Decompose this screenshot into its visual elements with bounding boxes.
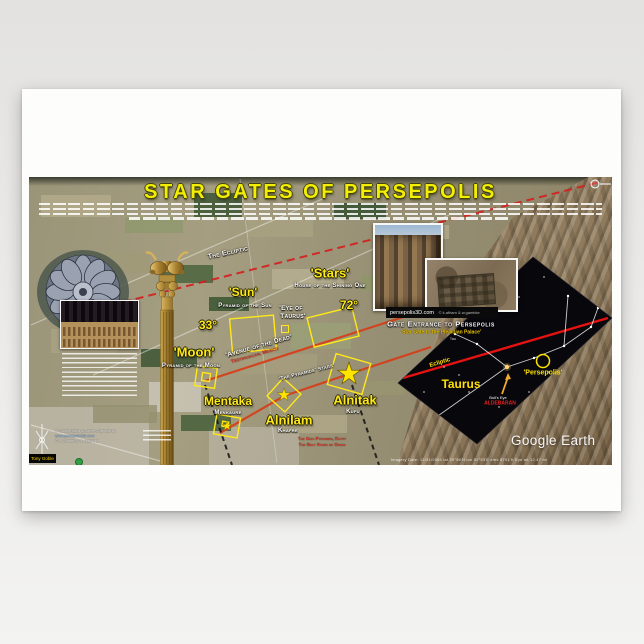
relief-columns <box>61 301 138 322</box>
alnitak-label: Alnitak <box>333 394 376 407</box>
stars-site-sublabel: House of the Shining One <box>294 283 365 289</box>
taurus-label: Taurus <box>441 378 480 390</box>
credits-fineprint <box>143 430 171 444</box>
moon-site-label: 'Moon' <box>174 346 215 359</box>
stars-site-label: 'Stars' <box>311 267 350 280</box>
credits-block: In Cooperation & Some Graphics by www.pe… <box>55 429 116 444</box>
intro-fineprint-line <box>39 213 602 215</box>
bulls-eye-label: Bull's Eye <box>489 396 506 400</box>
gate-entrance-subtitle: 'Star Gate to the Pleiadian Palace' <box>401 331 481 336</box>
aldebaran-label: ALDEBARAN <box>484 402 516 407</box>
alnilam-label: Alnilam <box>266 414 313 427</box>
gate-entrance-title: Gate Entrance to Persepolis <box>387 320 495 328</box>
intro-fineprint-line <box>129 217 509 219</box>
stars-angle-label: 72° <box>340 299 358 311</box>
intro-fineprint-line <box>39 208 602 210</box>
moon-site-sublabel: Pyramid of the Moon <box>162 363 220 369</box>
poster: STAR GATES OF PERSEPOLIS persepolis3D.co… <box>22 89 621 511</box>
render-caption-bar: persepolis3D.com © k.afham & w.gambke <box>386 307 498 318</box>
moon-angle-label: 33° <box>199 319 217 331</box>
render-caption-credit: © k.afham & w.gambke <box>439 310 480 315</box>
author-badge: Tony Goble <box>29 454 56 463</box>
kufu-sublabel: Kufu <box>346 409 360 415</box>
imagery-attribution: Imagery Date: 12/31/2004 lat 29°56'N lon… <box>329 458 609 462</box>
relief-figures-row <box>63 339 137 347</box>
credits-line-3: © K. Afham & W. Gambke <box>55 439 116 444</box>
eye-of-taurus-label-2: Taurus' <box>280 314 305 321</box>
eye-of-taurus-label-1: 'Eye of <box>279 306 302 313</box>
apadana-relief-photo <box>60 300 139 349</box>
poster-title: STAR GATES OF PERSEPOLIS <box>29 181 612 204</box>
giza-note-line1: The Giza Pyramids, Egypt <box>298 437 346 442</box>
google-earth-watermark: Google Earth <box>511 433 595 448</box>
relief-caption-fineprint <box>62 353 137 399</box>
render-caption-site: persepolis3D.com <box>390 310 434 316</box>
chart-persepolis-label: 'Persepolis' <box>524 370 563 377</box>
sun-site-label: 'Sun' <box>229 286 257 298</box>
tau-star-label: Tau <box>450 337 456 341</box>
persepolis-aerial-render <box>425 258 518 312</box>
relief-figures-row <box>63 327 137 335</box>
green-logo-icon <box>75 458 83 465</box>
page-background: STAR GATES OF PERSEPOLIS persepolis3D.co… <box>0 0 644 644</box>
mentaka-label: Mentaka <box>204 395 252 407</box>
menkaure-sublabel: Menkaure <box>214 410 241 416</box>
khafre-sublabel: Khafre <box>278 428 298 434</box>
sun-site-sublabel: Pyramid of the Sun <box>218 303 272 309</box>
giza-note-line2: The Belt Stars of Orion <box>299 443 346 448</box>
palace-platform <box>437 273 496 308</box>
satellite-map: STAR GATES OF PERSEPOLIS persepolis3D.co… <box>29 177 612 465</box>
